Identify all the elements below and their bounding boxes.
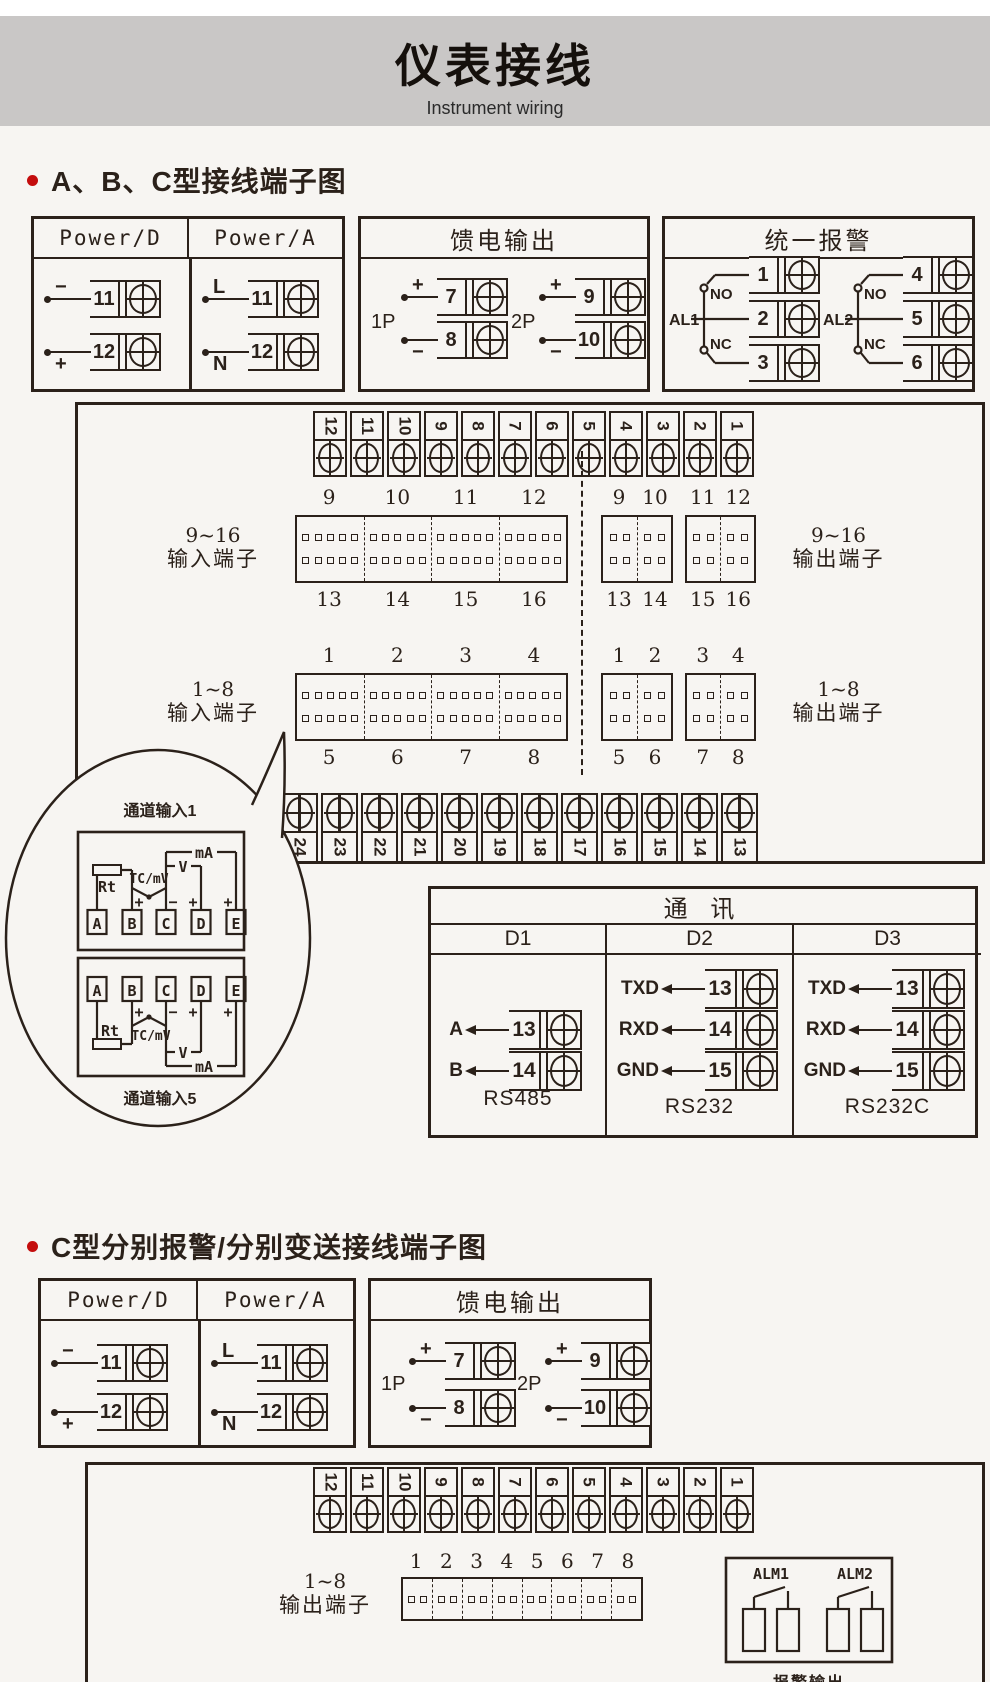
screw-head-icon (466, 443, 490, 473)
terminal-number: 8 (437, 323, 465, 357)
pin-contact (554, 557, 561, 564)
comm-signal-row: A13 (443, 1010, 605, 1050)
pin-number: 4 (500, 643, 568, 667)
pin-contact (370, 692, 377, 699)
terminal-number: 12 (248, 335, 276, 369)
pin-contact (587, 1596, 594, 1603)
terminal-assembly: 11 (90, 280, 161, 318)
screw-head-icon (577, 1499, 601, 1529)
output-top-numbers: 910 (601, 485, 673, 509)
pin-contact (727, 557, 734, 564)
pin-number: 1 (295, 643, 363, 667)
screw-head-icon (429, 443, 453, 473)
pin-contact (474, 534, 481, 541)
terminal-screw-slot (931, 971, 965, 1007)
pin-contact (529, 692, 536, 699)
terminal-clamp (931, 302, 940, 336)
pin-contact (351, 692, 358, 699)
screw-head-icon (614, 1499, 638, 1529)
pin-group (492, 1579, 522, 1619)
terminal-clamp (473, 1391, 482, 1425)
output-top-numbers: 1112 (685, 485, 756, 509)
strip-terminal: 11 (350, 1467, 384, 1533)
output-1-8-label: 1~8 输出端子 (256, 1569, 394, 1618)
signal-label: A (443, 1019, 465, 1041)
pin-number: 8 (721, 745, 757, 769)
terminal-screw-slot (722, 441, 752, 475)
strip-terminal: 6 (535, 411, 569, 477)
terminal-clamp (922, 971, 931, 1007)
terminal-number: 13 (705, 971, 735, 1007)
pin-group (364, 517, 432, 581)
terminal-number: 11 (352, 1469, 382, 1497)
screw-head-icon (688, 443, 712, 473)
terminal-number: 9 (426, 413, 456, 441)
arrow-left-icon (465, 1051, 509, 1091)
terminal-number: 8 (463, 413, 493, 441)
terminal-screw-slot (685, 441, 715, 475)
terminal-screw-slot (443, 795, 476, 831)
screw-head-icon (651, 1499, 675, 1529)
terminal-number: 12 (97, 1395, 125, 1429)
screw-terminal: 4 (903, 256, 974, 294)
pin-contact (339, 692, 346, 699)
terminal-d: D (196, 982, 205, 1000)
strip-terminal: 8 (461, 411, 495, 477)
screw-head-icon (136, 1397, 164, 1427)
pin-number: 5 (601, 745, 637, 769)
screw-head-icon (614, 443, 638, 473)
terminal-screw-slot (683, 795, 716, 831)
sign-e: + (223, 893, 232, 911)
terminal-e: E (231, 915, 240, 933)
pin-contact (351, 557, 358, 564)
wire (54, 1411, 98, 1414)
terminal-number: 1 (722, 1469, 752, 1497)
screw-head-icon (933, 1014, 961, 1046)
terminal-screw-slot (612, 280, 646, 314)
range-label: 9~16 (118, 523, 308, 547)
terminal-assembly: 10 (581, 1389, 652, 1427)
group-1p-label: 1P (371, 311, 395, 334)
terminal-number: 5 (903, 302, 931, 336)
screw-head-icon (326, 797, 353, 829)
pin-group (603, 675, 637, 739)
terminal-number: 6 (903, 346, 931, 380)
ma-label: mA (195, 1058, 213, 1076)
pin-number: 3 (685, 643, 721, 667)
strip-terminal: 10 (387, 1467, 421, 1533)
terminal-number: 8 (445, 1391, 473, 1425)
type-label: 输出端子 (746, 701, 931, 726)
screw-head-icon (476, 282, 504, 312)
terminal-screw-slot (574, 1497, 604, 1531)
ma-label: mA (195, 844, 213, 862)
nc-contact-label: NC (864, 336, 886, 353)
wire (412, 1360, 446, 1363)
terminal-screw-slot (352, 1497, 382, 1531)
pin-contact (707, 534, 714, 541)
terminal-d: D (196, 915, 205, 933)
pin-number: 3 (432, 643, 500, 667)
pin-contact (542, 715, 549, 722)
terminal-screw-slot (744, 971, 778, 1007)
terminal-clamp (735, 971, 744, 1007)
arrow-left-icon (661, 1051, 705, 1091)
pin-group (581, 1579, 611, 1619)
pin-contact (370, 557, 377, 564)
pin-contact (437, 534, 444, 541)
comm-column-d2: D2 TXD13RXD14GND15 RS232 (605, 925, 792, 1135)
terminal-number: 2 (685, 1469, 715, 1497)
screw-head-icon (725, 1499, 749, 1529)
terminal-clamp (276, 335, 285, 369)
pin-contact (727, 692, 734, 699)
page: 仪表接线 Instrument wiring A、B、C型接线端子图 Power… (0, 0, 990, 1682)
top-margin (0, 0, 990, 16)
screw-head-icon (726, 797, 753, 829)
pin-group (431, 675, 499, 739)
pin-contact (462, 534, 469, 541)
type-label: 输出端子 (256, 1593, 394, 1618)
terminal-number: 11 (248, 282, 276, 316)
terminal-screw-slot (931, 1053, 965, 1089)
pin-contact (542, 557, 549, 564)
alarm-terminal-row: 2 (749, 300, 820, 338)
screw-terminal: 10 (575, 321, 646, 359)
terminal-screw-slot (537, 1497, 567, 1531)
pin-number: 8 (500, 745, 568, 769)
range-label: 9~16 (746, 523, 931, 547)
pin-number: 14 (637, 587, 673, 611)
strip-terminal: 12 (313, 1467, 347, 1533)
terminal-number: 4 (611, 413, 641, 441)
pin-number: 11 (432, 485, 500, 509)
screw-head-icon (942, 348, 970, 378)
terminal-number: 10 (389, 1469, 419, 1497)
screw-terminal: 12 (97, 1393, 168, 1431)
terminal-number: 6 (537, 1469, 567, 1497)
terminal-screw-slot (940, 302, 974, 336)
terminal-c: C (161, 982, 170, 1000)
pin-contact (644, 692, 651, 699)
alm1-switch-icon (754, 1587, 788, 1609)
terminal-screw-slot (685, 1497, 715, 1531)
terminal-screw-slot (294, 1395, 328, 1429)
sign-d: + (188, 1003, 197, 1021)
pin-number: 5 (522, 1549, 552, 1573)
wire (404, 296, 438, 299)
pin-number: 10 (637, 485, 673, 509)
terminal-screw-slot (618, 1391, 652, 1425)
terminal-screw-slot (463, 441, 493, 475)
pin-contact (610, 692, 617, 699)
comm-signal-row: RXD14 (615, 1010, 792, 1050)
terminal-screw-slot (127, 335, 161, 369)
strip-terminal: 17 (561, 793, 598, 863)
alm2-switch-icon (838, 1587, 872, 1609)
strip-terminal: 3 (646, 1467, 680, 1533)
wire-lead: − (545, 1389, 581, 1427)
pin-contact (707, 715, 714, 722)
d1-rows: A13B14 (431, 955, 605, 1091)
pin-number: 13 (295, 587, 363, 611)
output-numbers: 12345678 (401, 1549, 643, 1573)
page-subtitle: Instrument wiring (0, 98, 990, 119)
polarity-sign: − (62, 1341, 74, 1361)
screw-terminal: 6 (903, 344, 974, 382)
polarity-sign: + (62, 1414, 74, 1434)
channel-5-label: 通道输入5 (124, 1089, 197, 1108)
communication-box: 通 讯 D1 A13B14 RS485 D2 TXD13RXD14GND15 R… (428, 886, 978, 1138)
terminal-number: 10 (581, 1391, 609, 1425)
wire (205, 298, 249, 301)
strip-terminal: 2 (683, 1467, 717, 1533)
terminal-number: 20 (443, 831, 476, 861)
terminal-screw-slot (603, 795, 636, 831)
pin-contact (407, 557, 414, 564)
screw-head-icon (318, 1499, 342, 1529)
strip-terminal: 3 (646, 411, 680, 477)
terminal-number: 7 (445, 1344, 473, 1378)
pin-group (637, 517, 672, 581)
screw-terminal: 11 (248, 280, 319, 318)
terminal-clamp (125, 1346, 134, 1380)
terminal-screw-slot (648, 441, 678, 475)
alm2-label: ALM2 (837, 1565, 873, 1583)
strip-terminal: 13 (721, 793, 758, 863)
pin-contact (437, 557, 444, 564)
pin-group (499, 675, 567, 739)
screw-head-icon (486, 797, 513, 829)
terminal-screw-slot (500, 1497, 530, 1531)
line-sign: L (213, 277, 225, 297)
power-a-terminal-11: L 11 (202, 280, 319, 318)
pin-contact (394, 692, 401, 699)
pin-group (364, 675, 432, 739)
screw-head-icon (933, 1055, 961, 1087)
pin-number: 2 (431, 1549, 461, 1573)
pin-group (637, 675, 672, 739)
output-top-numbers: 12 (601, 643, 673, 667)
sign-d: + (188, 893, 197, 911)
pin-number: 3 (462, 1549, 492, 1573)
pin-number: 7 (432, 745, 500, 769)
terminal-number: 22 (363, 831, 396, 861)
terminal-number: 9 (575, 280, 603, 314)
pin-contact (419, 715, 426, 722)
terminal-assembly: 12 (90, 333, 161, 371)
terminal-a: A (92, 982, 101, 1000)
strip-terminal: 15 (641, 793, 678, 863)
terminal-clamp (285, 1395, 294, 1429)
screw-head-icon (746, 1014, 774, 1046)
terminal-assembly: 8 (445, 1389, 516, 1427)
strip-terminal: 21 (401, 793, 438, 863)
d1-header: D1 (431, 925, 605, 955)
pin-number: 15 (685, 587, 721, 611)
terminal-screw-slot (134, 1346, 168, 1380)
pin-contact (505, 692, 512, 699)
terminal-screw-slot (940, 258, 974, 292)
wire (214, 1411, 258, 1414)
comm-title: 通 讯 (431, 889, 975, 925)
pin-contact (623, 715, 630, 722)
polarity-sign: + (556, 1339, 568, 1359)
terminal-b: B (127, 982, 136, 1000)
alarm-relay-2-symbol: NO NC AL2 (823, 259, 903, 383)
polarity-sign: − (55, 277, 67, 297)
no-contact-label: NO (710, 286, 733, 303)
strip-terminal: 5 (572, 411, 606, 477)
pin-contact (327, 534, 334, 541)
pin-contact (450, 692, 457, 699)
terminal-clamp (465, 323, 474, 357)
polarity-sign: + (55, 354, 67, 374)
section-1-heading: A、B、C型接线端子图 (27, 160, 347, 200)
pin-contact (468, 1596, 475, 1603)
pin-contact (351, 534, 358, 541)
comm-signal-row: B14 (443, 1051, 605, 1091)
sign-e: + (223, 1003, 232, 1021)
terminal-number: 13 (509, 1012, 539, 1048)
terminal-number: 15 (643, 831, 676, 861)
pin-contact (474, 715, 481, 722)
pin-contact (382, 715, 389, 722)
pin-contact (542, 534, 549, 541)
alarm-terminal-row: 3 (749, 344, 820, 382)
screw-head-icon (392, 1499, 416, 1529)
screw-head-icon (466, 1499, 490, 1529)
neutral-sign: N (213, 354, 227, 374)
terminal-screw-slot (786, 302, 820, 336)
terminal-screw-slot (648, 1497, 678, 1531)
screw-head-icon (296, 1397, 324, 1427)
arrow-left-icon (661, 969, 705, 1009)
pin-number: 8 (613, 1549, 643, 1573)
terminal-clamp (603, 323, 612, 357)
terminal-assembly: 7 (445, 1342, 516, 1380)
c-type-terminal-board: 121110987654321 1~8 输出端子 12345678 ALM1 A… (85, 1462, 985, 1682)
alarm-relay-1-symbol: NO NC AL1 (669, 259, 749, 383)
pin-contact (450, 715, 457, 722)
signal-label: GND (802, 1060, 848, 1082)
screw-head-icon (788, 304, 816, 334)
signal-label: B (443, 1060, 465, 1082)
terminal-number: 9 (426, 1469, 456, 1497)
terminal-number: 3 (648, 1469, 678, 1497)
pin-contact (438, 1596, 445, 1603)
pin-contact (302, 534, 309, 541)
neutral-sign: N (222, 1414, 236, 1434)
pin-number: 1 (401, 1549, 431, 1573)
wire-lead: + (409, 1342, 445, 1380)
screw-terminal: 12 (90, 333, 161, 371)
input-connector-1-8 (295, 673, 568, 741)
pin-contact (480, 1596, 487, 1603)
power-d-header: Power/D (34, 219, 187, 257)
terminal-clamp (931, 346, 940, 380)
terminal-clamp (473, 1344, 482, 1378)
pin-group (431, 517, 499, 581)
terminal-number: 14 (509, 1053, 539, 1089)
pin-contact (510, 1596, 517, 1603)
feed-output-box-2: 馈电输出 1P + 7 − 8 2P + 9 − 10 (368, 1278, 652, 1448)
terminal-screw-slot (523, 795, 556, 831)
strip-terminal: 8 (461, 1467, 495, 1533)
pin-contact (610, 715, 617, 722)
screw-terminal: 13 (892, 969, 965, 1009)
terminal-assembly: 11 (257, 1344, 328, 1382)
power-d-terminal-12: + 12 (44, 333, 161, 371)
pin-contact (623, 534, 630, 541)
pin-contact (727, 534, 734, 541)
alm1-label: ALM1 (753, 1565, 789, 1583)
feed-terminal-7: + 7 (401, 278, 508, 316)
screw-head-icon (614, 282, 642, 312)
terminal-number: 11 (257, 1346, 285, 1380)
screw-head-icon (933, 973, 961, 1005)
screw-head-icon (614, 325, 642, 355)
wire-lead: + (539, 278, 575, 316)
pin-contact (629, 1596, 636, 1603)
strip-terminal: 6 (535, 1467, 569, 1533)
screw-head-icon (429, 1499, 453, 1529)
pin-contact (644, 557, 651, 564)
pin-contact (693, 715, 700, 722)
screw-terminal: 12 (257, 1393, 328, 1431)
signal-label: TXD (615, 978, 661, 1000)
wire-lead: − (401, 321, 437, 359)
feed-output-title: 馈电输出 (371, 1281, 649, 1321)
bullet-icon (27, 1241, 38, 1252)
group-1p-label: 1P (381, 1373, 405, 1396)
pin-number: 11 (685, 485, 721, 509)
strip-terminal: 9 (424, 411, 458, 477)
comm-signal-row: GND15 (802, 1051, 981, 1091)
terminal-number: 9 (581, 1344, 609, 1378)
terminal-screw-slot (611, 1497, 641, 1531)
screw-head-icon (651, 443, 675, 473)
arrow-left-icon (848, 1051, 892, 1091)
pin-group (551, 1579, 581, 1619)
screw-head-icon (540, 443, 564, 473)
power-terminal-box: Power/D Power/A − 11 + 12 L 11 N 12 (31, 216, 345, 392)
pin-contact (644, 534, 651, 541)
terminal-number: 21 (403, 831, 436, 861)
pin-contact (693, 534, 700, 541)
pin-group (297, 517, 364, 581)
wire-lead: N (202, 333, 248, 371)
pin-contact (557, 1596, 564, 1603)
terminal-screw-slot (482, 1391, 516, 1425)
pin-contact (554, 715, 561, 722)
pin-number: 1 (601, 643, 637, 667)
terminal-clamp (603, 280, 612, 314)
screw-head-icon (746, 1055, 774, 1087)
screw-head-icon (484, 1393, 512, 1423)
power-d-terminal-12: + 12 (51, 1393, 168, 1431)
terminal-clamp (777, 258, 786, 292)
output-bottom-numbers: 78 (685, 745, 756, 769)
terminal-screw-slot (723, 795, 756, 831)
strip-terminal: 18 (521, 793, 558, 863)
pin-contact (658, 692, 665, 699)
pin-contact (623, 692, 630, 699)
sign-c: − (168, 893, 177, 911)
terminal-assembly: 9 (575, 278, 646, 316)
strip-terminal: 7 (498, 1467, 532, 1533)
